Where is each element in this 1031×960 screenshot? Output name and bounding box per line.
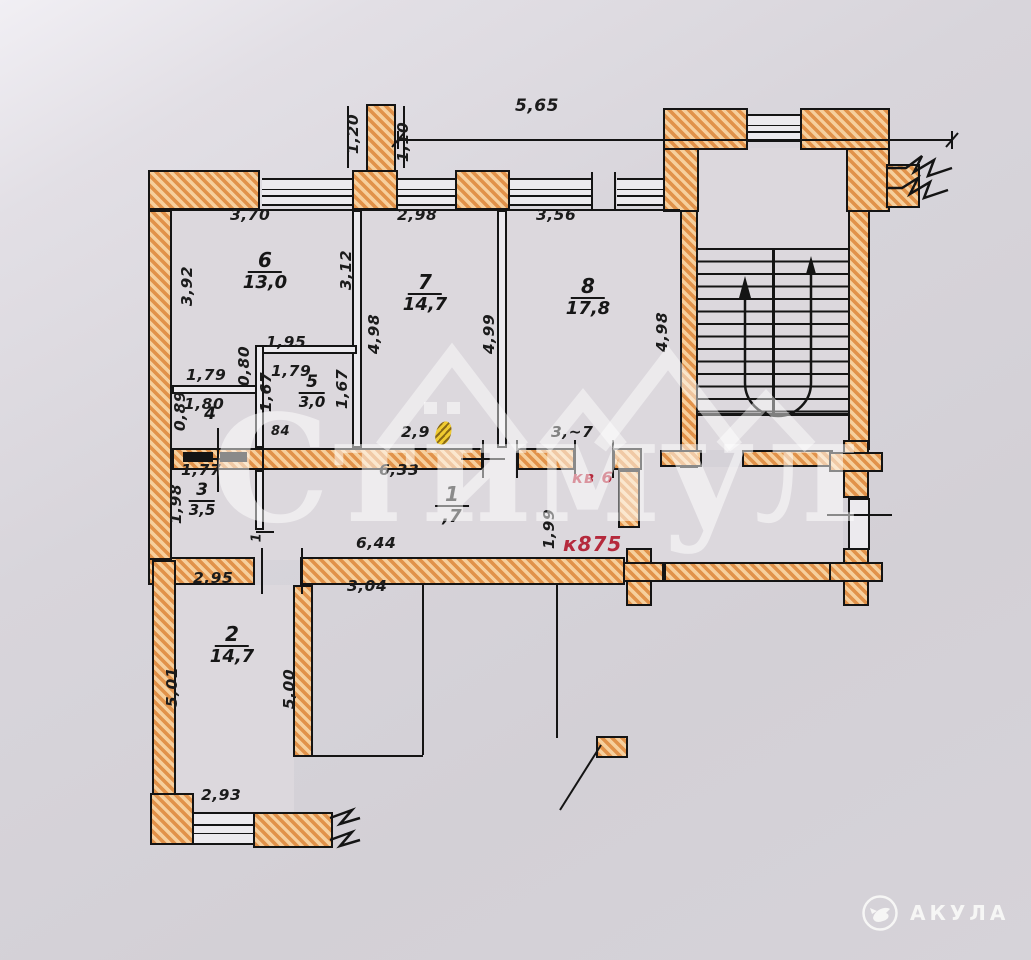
floor-area-room2 — [176, 585, 294, 813]
wall-segment — [596, 736, 628, 758]
dimension-label: 5,00 — [280, 669, 298, 709]
room-area: 3,0 — [299, 394, 326, 411]
dimension-label: 2,9 — [401, 423, 430, 441]
dimension-label: 3,56 — [536, 206, 576, 224]
dimension-label: 2,98 — [397, 206, 437, 224]
cadastral-annotation: к875 — [563, 532, 622, 556]
wall-segment — [663, 148, 699, 212]
dimension-label: 3,70 — [230, 206, 270, 224]
dimension-label: 0,80 — [235, 346, 253, 386]
room-label-8: 8 17,8 — [566, 276, 610, 320]
dimension-label: 6,33 — [379, 461, 419, 479]
wall-segment — [150, 793, 194, 845]
dimension-label: 1,77 — [181, 461, 221, 479]
partition-wall — [255, 470, 264, 530]
partition-wall — [352, 210, 362, 448]
room-area: 14,7 — [210, 647, 254, 668]
room-area: 3,5 — [189, 502, 216, 519]
wall-segment — [517, 448, 575, 470]
window — [262, 178, 352, 206]
wall-segment — [664, 562, 831, 582]
wall-segment — [253, 812, 333, 848]
room-label-7: 7 14,7 — [403, 272, 447, 316]
wall-segment — [660, 450, 702, 467]
dimension-label: 5,65 — [515, 96, 559, 116]
room-number: 8 — [571, 276, 605, 299]
dimension-label: 3,12 — [337, 250, 355, 290]
room-number: 7 — [408, 272, 442, 295]
dimension-label: 1,20 — [344, 114, 362, 154]
dimension-label: 4,98 — [653, 312, 671, 352]
dimension-label: 2,95 — [193, 569, 233, 587]
pillar — [829, 562, 883, 582]
wall-segment — [455, 170, 510, 210]
window — [510, 178, 592, 206]
apartment-annotation: кв 6 — [572, 468, 614, 487]
wall-segment — [680, 210, 698, 468]
window — [398, 178, 455, 206]
dimension-label: 1,95 — [266, 333, 306, 351]
partition-wall — [497, 210, 507, 448]
window — [748, 114, 800, 142]
wall-segment — [613, 448, 642, 470]
wall-segment — [848, 210, 870, 450]
dimension-label: 6,44 — [356, 534, 396, 552]
room-number: 2 — [215, 624, 249, 647]
pillar — [829, 452, 883, 472]
dimension-label: 2,93 — [201, 786, 241, 804]
dimension-label: 3,~7 — [551, 423, 593, 441]
shark-icon — [860, 893, 900, 933]
room-label-6: 6 13,0 — [243, 250, 287, 294]
room-label-5: 5 3,0 — [299, 372, 326, 411]
dimension-label: 84 — [271, 424, 290, 439]
dimension-label: 4,99 — [480, 314, 498, 354]
window — [617, 178, 663, 206]
room-area: 13,0 — [243, 273, 287, 294]
vent-duct — [220, 452, 247, 462]
dimension-label: 4,98 — [365, 314, 383, 354]
dimension-label: 1 — [249, 533, 264, 543]
stair-divider — [772, 248, 775, 415]
dimension-label: 5,01 — [163, 667, 181, 707]
wall-segment — [262, 448, 483, 470]
dimension-label: 1,10 — [394, 122, 412, 162]
wall-segment — [366, 104, 396, 172]
room-number: 5 — [299, 374, 325, 394]
room-area: 17,8 — [566, 299, 610, 320]
dimension-label: 3,04 — [347, 577, 387, 595]
room-number: 1 — [435, 484, 469, 507]
room-label-2: 2 14,7 — [210, 624, 254, 668]
wall-segment — [800, 108, 890, 150]
room-number: 3 — [189, 482, 215, 502]
wall-segment — [886, 164, 920, 208]
room-label-3: 3 3,5 — [189, 480, 216, 519]
room-area: 14,7 — [403, 295, 447, 316]
dimension-label: 1,98 — [167, 484, 185, 524]
room-label-1: 1 ,7 — [435, 484, 469, 528]
dimension-label: 1,99 — [540, 509, 558, 549]
wall-segment — [846, 148, 890, 212]
dimension-label: 1,79 — [186, 366, 226, 384]
room-number: 4 — [204, 406, 216, 424]
dimension-label: 3,92 — [178, 266, 196, 306]
floor-area-vestibule — [640, 467, 843, 563]
wall-segment — [663, 108, 748, 150]
room-number: 6 — [248, 250, 282, 273]
wall-segment — [742, 450, 833, 467]
floor-plan-canvas: 5,65 1,20 1,10 3,70 2,98 3,56 3,92 3,12 … — [0, 0, 1031, 960]
dimension-label: 1,67 — [257, 372, 275, 412]
wall-segment — [148, 170, 260, 210]
wall-segment — [352, 170, 398, 210]
wall-segment — [618, 470, 640, 528]
agency-logo: АКУЛА — [860, 893, 1009, 933]
agency-name: АКУЛА — [910, 901, 1009, 925]
partition-wall — [848, 498, 870, 550]
room-area: ,7 — [435, 507, 469, 528]
room-label-4: 4 — [204, 404, 216, 424]
dimension-label: 1,67 — [333, 369, 351, 409]
window — [194, 812, 253, 845]
